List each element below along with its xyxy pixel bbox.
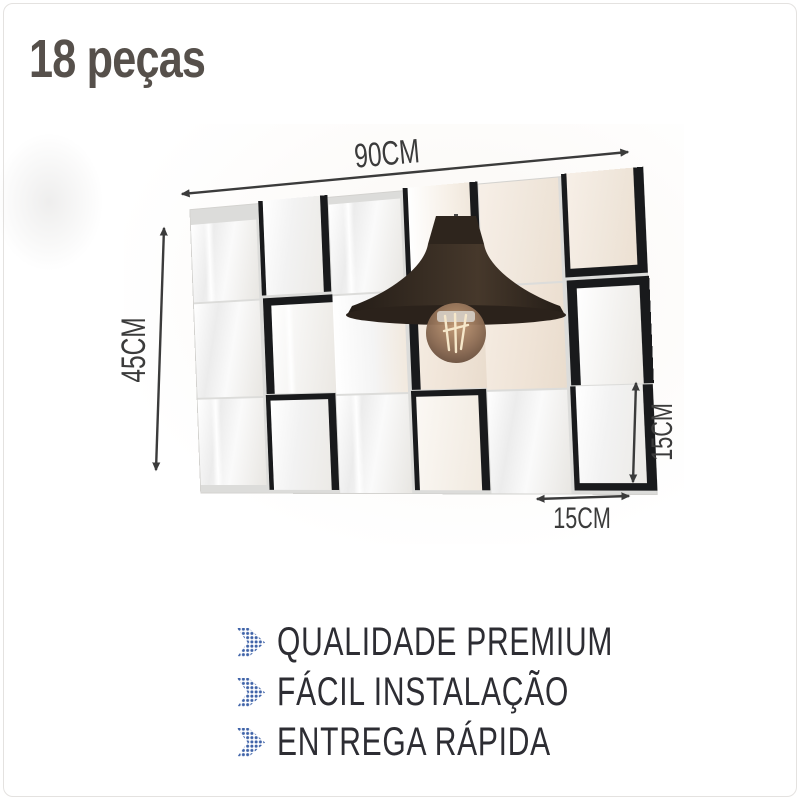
feature-item: QUALIDADE PREMIUM [237,617,725,667]
height-dimension-label: 45CM [116,307,152,393]
mirror-tile [191,220,260,303]
piece-count-title: 18 peças [29,28,205,90]
mirror-tile [258,195,330,296]
feature-label: FÁCIL INSTALAÇÃO [277,670,569,715]
mirror-tile [411,388,491,490]
mirror-tile [194,301,263,398]
chevron-right-dotted-icon [237,627,266,658]
tile-height-dimension-label: 15CM [645,389,681,475]
width-dimension-label: 90CM [342,132,431,175]
chevron-right-dotted-icon [237,677,266,708]
feature-item: ENTREGA RÁPIDA [237,717,725,767]
feature-item: FÁCIL INSTALAÇÃO [237,667,725,717]
wall-shadow [0,132,104,272]
mirror-tile [566,276,654,385]
feature-label: QUALIDADE PREMIUM [277,620,613,665]
mirror-tile [488,389,572,493]
mirror-tile [561,167,648,278]
product-image-card: 18 peças 90CM 45CM 15CM 15CM QUALIDADE P [3,3,797,797]
mirror-tile [336,394,412,493]
mirror-tile [198,398,267,485]
feature-list: QUALIDADE PREMIUM FÁCIL INSTALAÇÃO ENTRE… [237,617,725,767]
tile-width-dimension-label: 15CM [539,501,625,537]
feature-label: ENTREGA RÁPIDA [277,720,551,765]
chevron-right-dotted-icon [237,727,266,758]
pendant-lamp-reflection [344,214,568,374]
lamp-neck [428,216,484,244]
mirror-tile [263,295,336,394]
mirror-tile [266,393,339,490]
